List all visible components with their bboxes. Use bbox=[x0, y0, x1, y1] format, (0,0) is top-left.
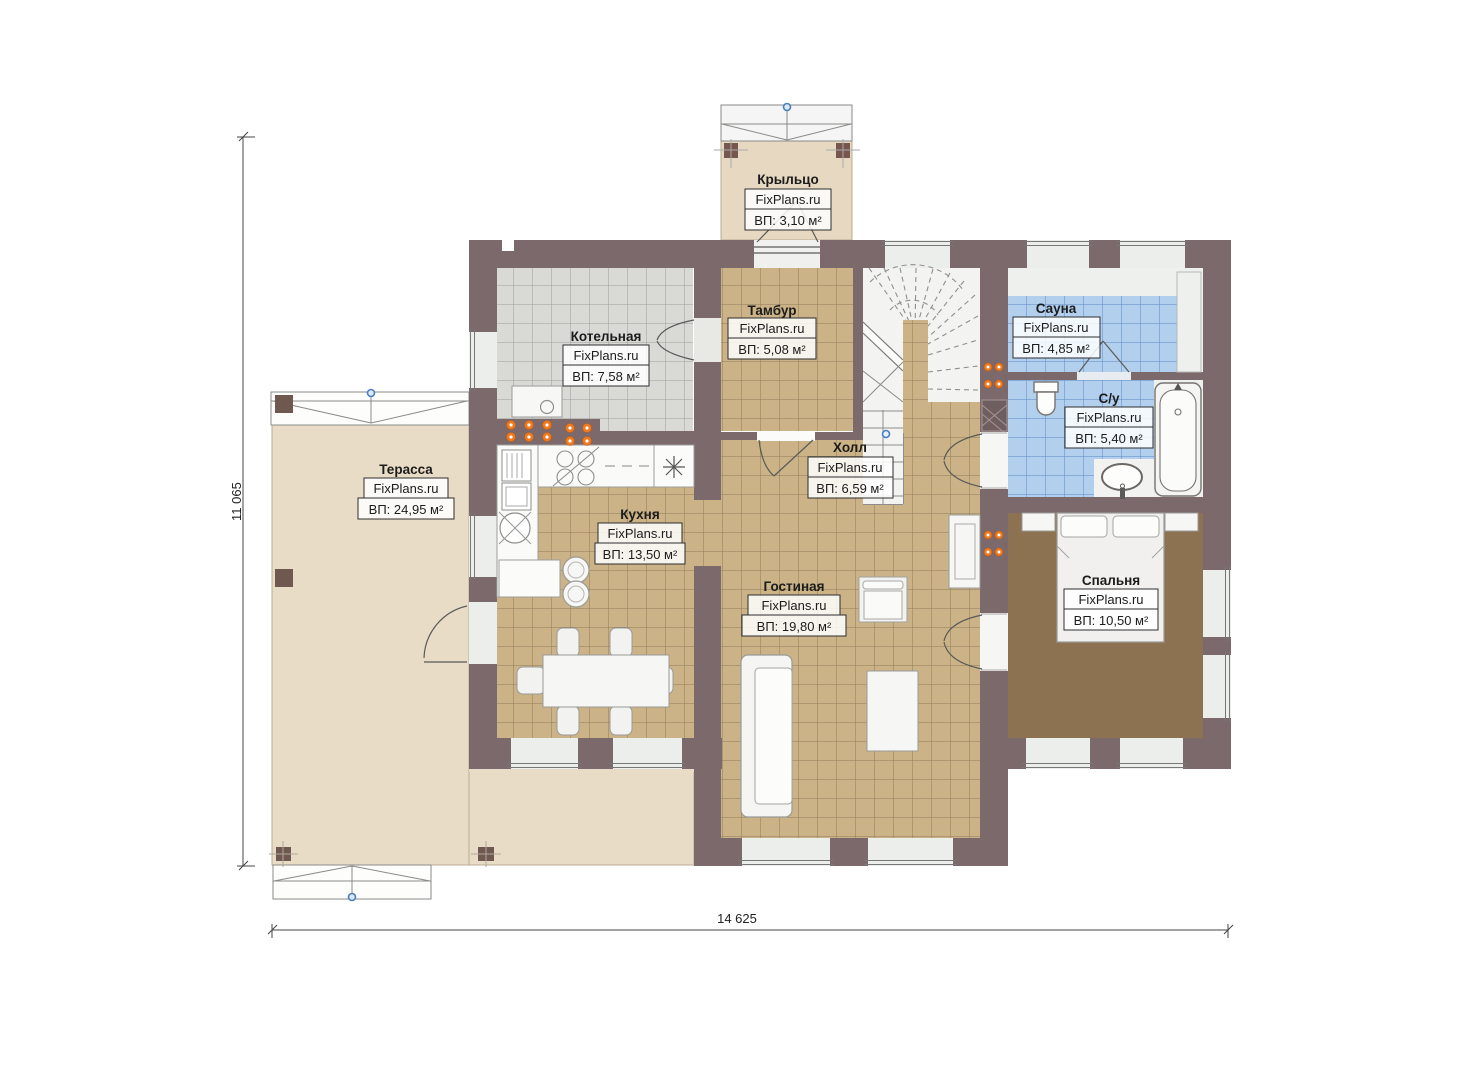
svg-text:FixPlans.ru: FixPlans.ru bbox=[573, 348, 638, 363]
svg-text:FixPlans.ru: FixPlans.ru bbox=[739, 321, 804, 336]
svg-text:Гостиная: Гостиная bbox=[763, 579, 824, 594]
svg-text:FixPlans.ru: FixPlans.ru bbox=[1023, 320, 1088, 335]
svg-text:Крыльцо: Крыльцо bbox=[757, 172, 818, 187]
svg-text:Тамбур: Тамбур bbox=[748, 303, 797, 318]
svg-text:Кухня: Кухня bbox=[620, 507, 659, 522]
svg-text:14 625: 14 625 bbox=[717, 911, 757, 926]
svg-text:ВП: 5,08 м²: ВП: 5,08 м² bbox=[738, 342, 806, 357]
svg-text:Холл: Холл bbox=[833, 440, 867, 455]
svg-text:ВП: 19,80 м²: ВП: 19,80 м² bbox=[757, 619, 832, 634]
svg-text:ВП: 6,59 м²: ВП: 6,59 м² bbox=[816, 481, 884, 496]
svg-text:Терасса: Терасса bbox=[379, 462, 433, 477]
svg-text:FixPlans.ru: FixPlans.ru bbox=[373, 481, 438, 496]
svg-text:С/у: С/у bbox=[1098, 391, 1120, 406]
svg-text:ВП: 24,95 м²: ВП: 24,95 м² bbox=[369, 502, 444, 517]
svg-text:ВП: 7,58 м²: ВП: 7,58 м² bbox=[572, 369, 640, 384]
svg-text:ВП: 10,50 м²: ВП: 10,50 м² bbox=[1074, 613, 1149, 628]
svg-text:FixPlans.ru: FixPlans.ru bbox=[817, 460, 882, 475]
svg-text:ВП: 4,85 м²: ВП: 4,85 м² bbox=[1022, 341, 1090, 356]
svg-text:Сауна: Сауна bbox=[1036, 301, 1077, 316]
svg-text:FixPlans.ru: FixPlans.ru bbox=[755, 192, 820, 207]
svg-text:Спальня: Спальня bbox=[1082, 573, 1140, 588]
svg-text:FixPlans.ru: FixPlans.ru bbox=[1078, 592, 1143, 607]
svg-text:ВП: 13,50 м²: ВП: 13,50 м² bbox=[603, 547, 678, 562]
svg-text:Котельная: Котельная bbox=[571, 329, 642, 344]
svg-text:11 065: 11 065 bbox=[229, 482, 244, 521]
svg-text:FixPlans.ru: FixPlans.ru bbox=[607, 526, 672, 541]
svg-text:ВП: 5,40 м²: ВП: 5,40 м² bbox=[1075, 431, 1143, 446]
svg-text:FixPlans.ru: FixPlans.ru bbox=[761, 598, 826, 613]
svg-text:ВП: 3,10 м²: ВП: 3,10 м² bbox=[754, 213, 822, 228]
svg-text:FixPlans.ru: FixPlans.ru bbox=[1076, 410, 1141, 425]
